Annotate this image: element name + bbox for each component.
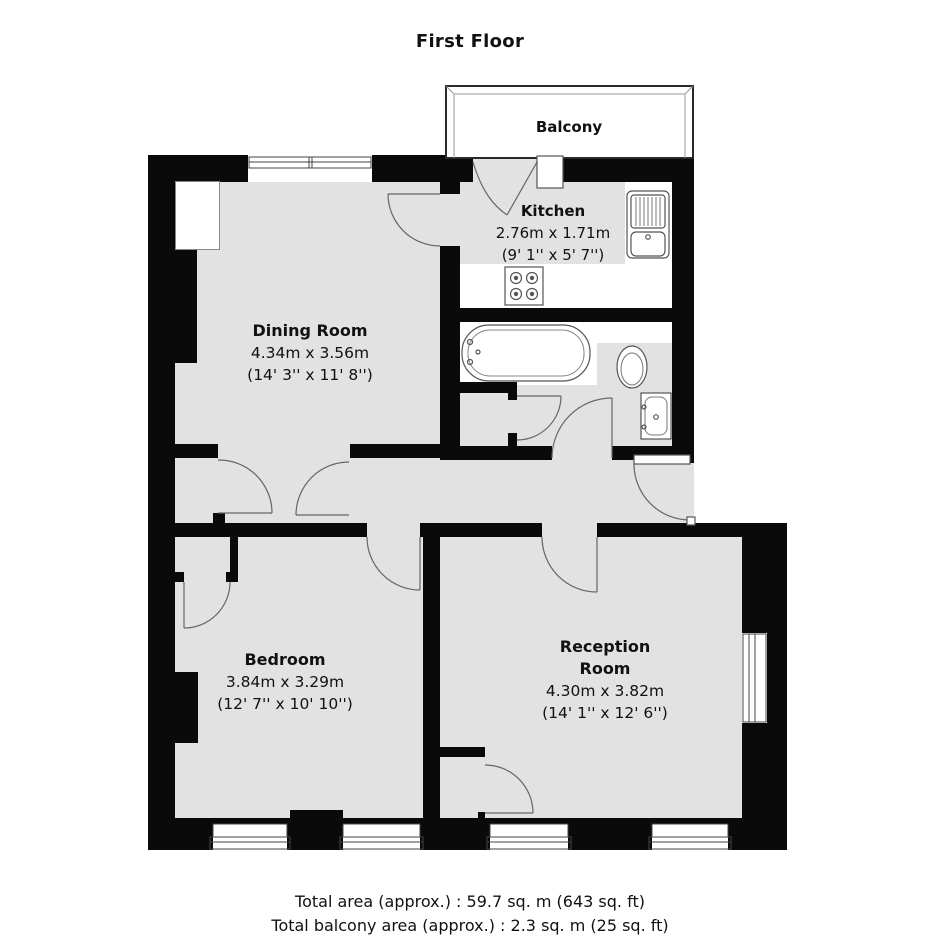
room-size-imperial: (9' 1'' x 5' 7'') [496,244,610,266]
kitchen-door [388,194,440,246]
room-size-metric: 3.84m x 3.29m [217,671,353,693]
dining-door-right [296,462,349,515]
hob-icon [505,267,543,305]
window-frame [249,157,371,168]
window-frame [743,634,766,722]
toilet-icon [617,346,647,388]
room-size-metric: 4.30m x 3.82m [533,680,678,702]
room-size-imperial: (14' 1'' x 12' 6'') [533,702,678,724]
total-area-text: Total area (approx.) : 59.7 sq. m (643 s… [295,892,645,911]
wash-basin-icon [641,393,671,439]
bathroom-door [552,398,612,458]
cupboard-door [517,396,561,440]
window-frame [210,824,731,849]
reception-corner-door [485,765,533,813]
room-name: Reception Room [533,636,678,680]
room-label-kitchen: Kitchen 2.76m x 1.71m (9' 1'' x 5' 7'') [496,200,610,266]
bathtub-icon [462,325,590,381]
alcove-border [176,182,220,250]
total-balcony-area-text: Total balcony area (approx.) : 2.3 sq. m… [271,916,668,935]
room-size-metric: 4.34m x 3.56m [247,342,373,364]
room-label-reception: Reception Room 4.30m x 3.82m (14' 1'' x … [533,636,678,724]
room-name: Kitchen [496,200,610,222]
room-name: Dining Room [247,320,373,342]
room-size-imperial: (14' 3'' x 11' 8'') [247,364,373,386]
plan-linework [0,0,940,940]
bedroom-door [367,537,420,590]
reception-door [542,537,597,592]
room-size-metric: 2.76m x 1.71m [496,222,610,244]
kitchen-sink-icon [627,191,669,258]
plan-title: First Floor [416,31,524,52]
room-name: Bedroom [217,649,353,671]
closet-door [184,582,230,628]
room-size-imperial: (12' 7'' x 10' 10'') [217,693,353,715]
balcony-label: Balcony [536,118,602,136]
room-label-bedroom: Bedroom 3.84m x 3.29m (12' 7'' x 10' 10'… [217,649,353,715]
floor-plan: First Floor Balcony Kitchen 2.76m x 1.71… [0,0,940,940]
entrance-door [634,455,695,525]
dining-door-left [218,460,272,513]
room-label-dining: Dining Room 4.34m x 3.56m (14' 3'' x 11'… [247,320,373,386]
